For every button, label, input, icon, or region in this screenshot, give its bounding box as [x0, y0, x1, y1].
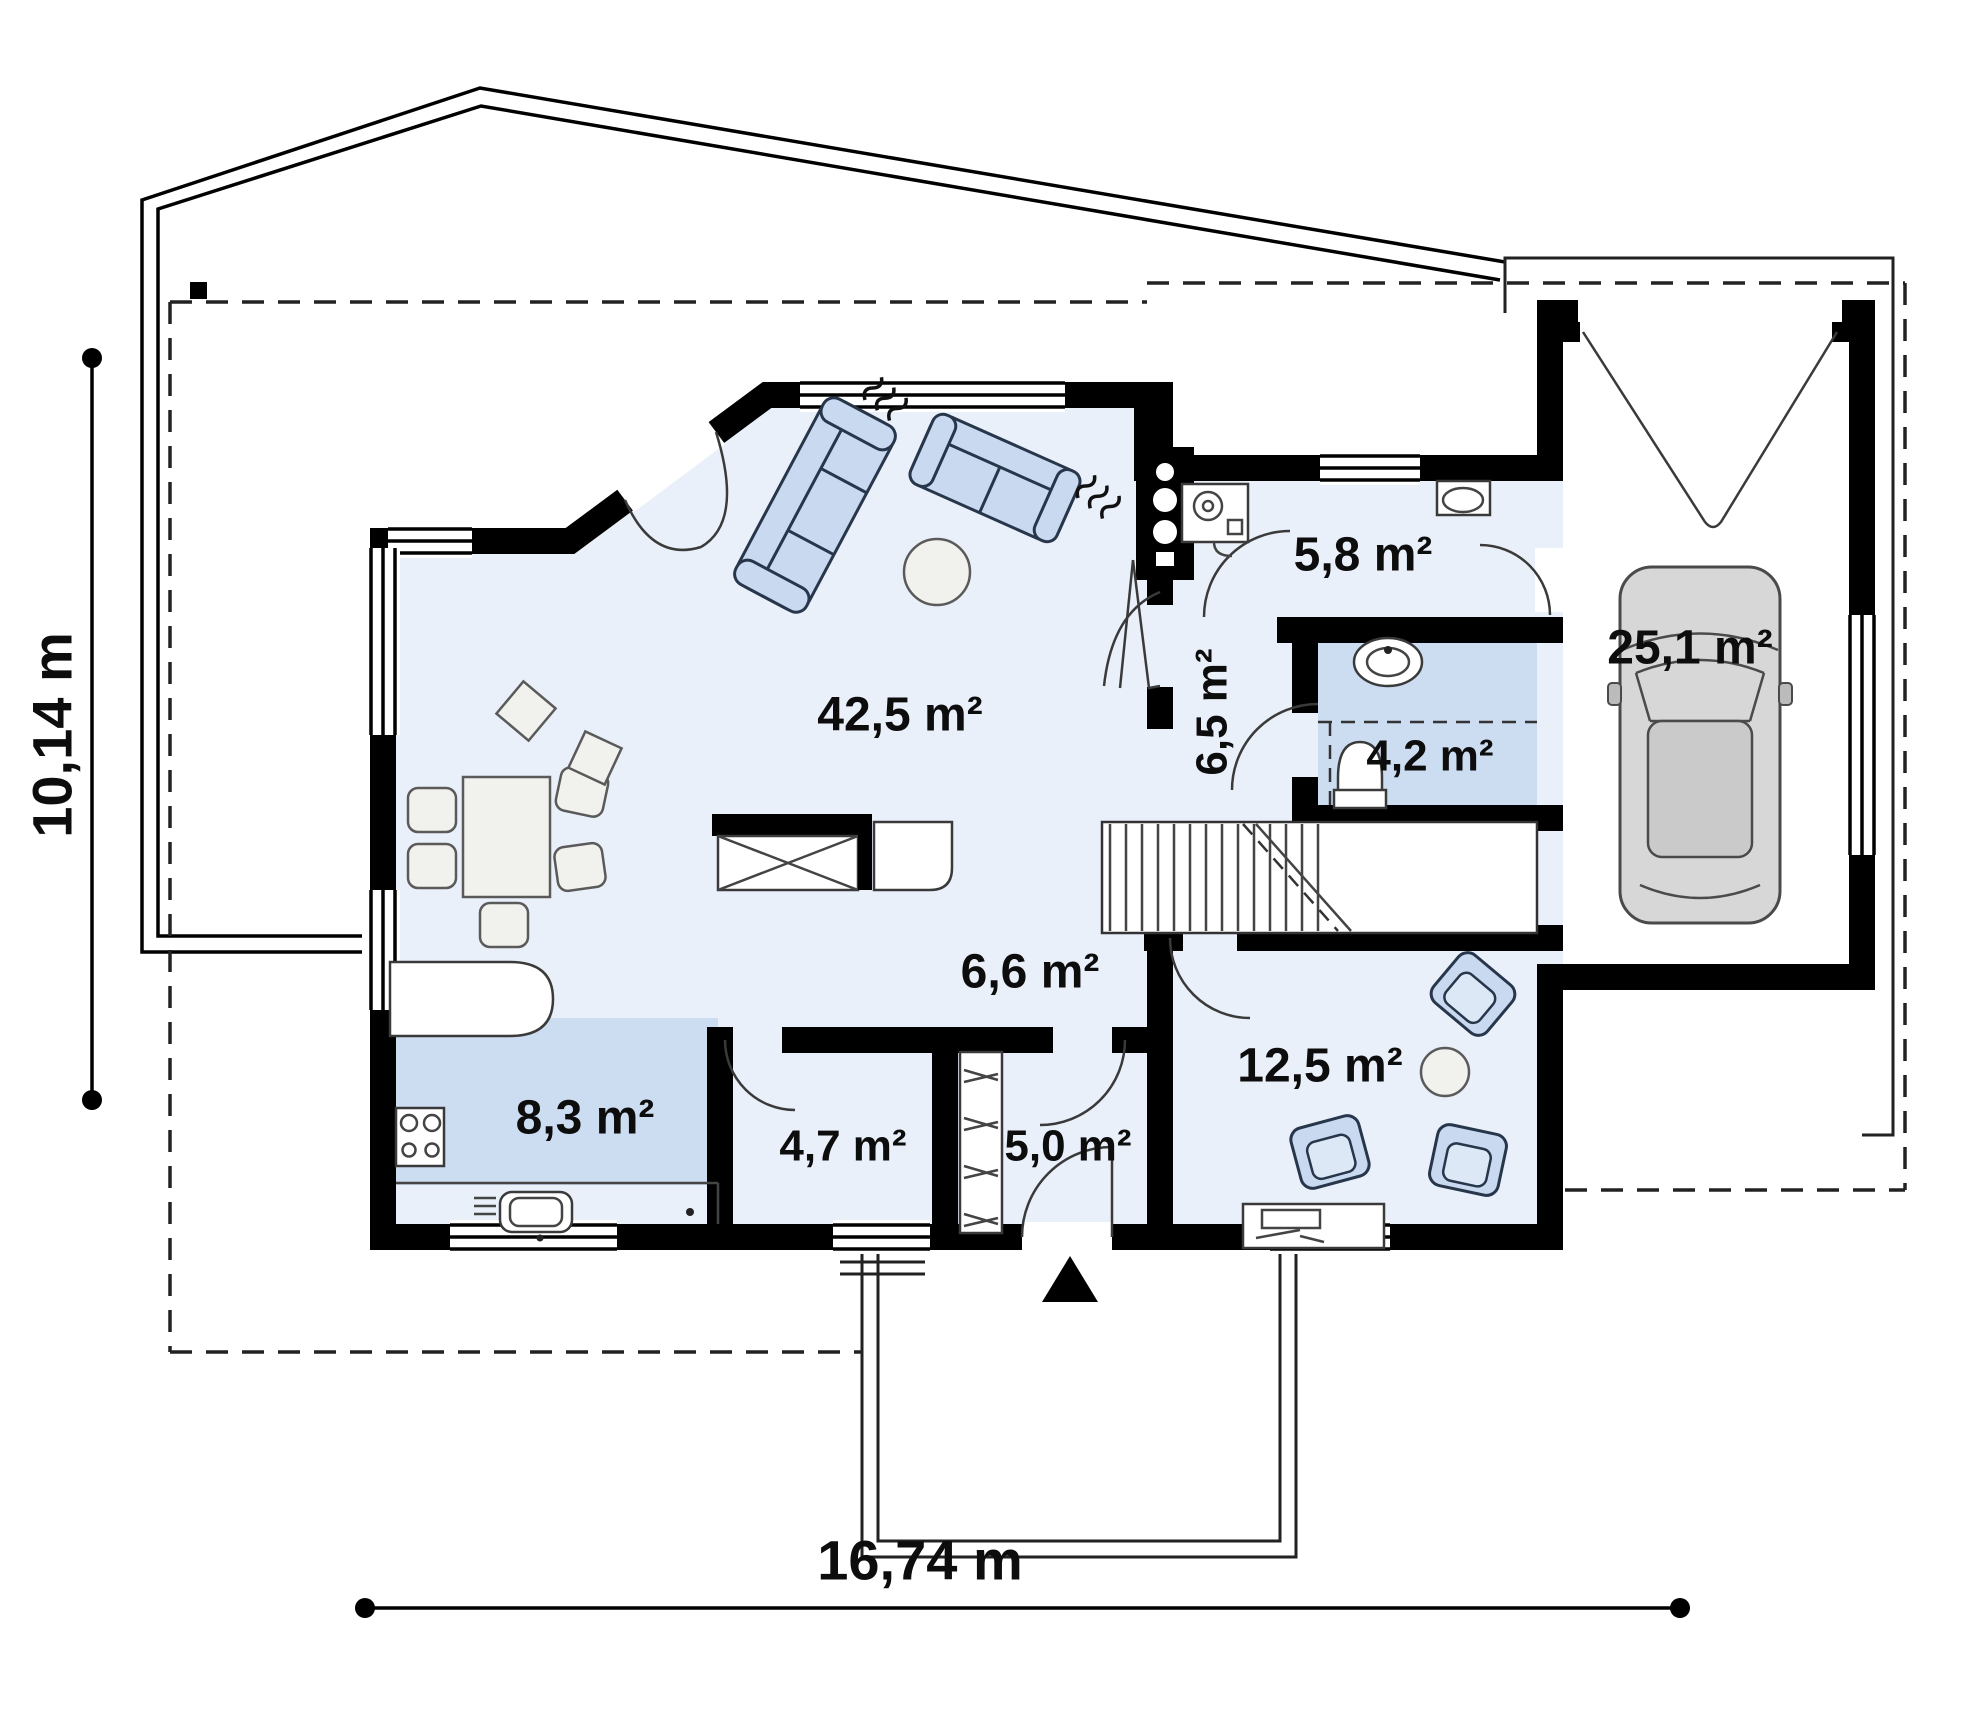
car-mirror — [1779, 683, 1792, 705]
dimension-vertical: 10,14 m — [21, 348, 103, 1110]
car-icon — [1608, 567, 1792, 923]
room-label-utility: 5,8 m² — [1294, 529, 1433, 582]
dining-chair-icon — [408, 788, 456, 832]
floor-plan-page: 42,5 m² 5,8 m² 6,5 m² 4,2 m² 25,1 m² 6,6… — [0, 0, 1980, 1732]
floor-plan-drawing: 42,5 m² 5,8 m² 6,5 m² 4,2 m² 25,1 m² 6,6… — [0, 0, 1980, 1732]
armchair-icon — [1427, 1122, 1508, 1197]
stove-icon — [396, 1108, 444, 1166]
desk-icon — [1243, 1204, 1384, 1248]
dining-chair-icon — [553, 842, 607, 892]
porch-steps — [840, 1262, 925, 1274]
dining-chair-icon — [408, 844, 456, 888]
counter-knob — [686, 1208, 694, 1216]
room-label-hall: 6,6 m² — [961, 946, 1100, 999]
gate-post — [1832, 322, 1852, 342]
room-label-pantry: 4,7 m² — [779, 1122, 906, 1171]
car-mirror — [1608, 683, 1621, 705]
dining-chair-icon — [480, 903, 528, 947]
gate-post — [1560, 322, 1580, 342]
entry-arrow-icon — [1042, 1256, 1098, 1302]
bench-icon — [874, 822, 952, 890]
dimension-label-height: 10,14 m — [21, 632, 84, 838]
stairs — [1102, 822, 1537, 933]
wardrobe-icon — [960, 1052, 1002, 1233]
pouf-icon — [1421, 1048, 1469, 1096]
utility-window — [1320, 451, 1420, 485]
room-label-garage: 25,1 m² — [1607, 622, 1772, 675]
room-label-kitchen: 8,3 m² — [516, 1092, 655, 1145]
room-label-corridor: 6,5 m² — [1188, 648, 1237, 775]
bathroom-sink-icon — [1354, 638, 1422, 686]
utility-sink-icon — [1437, 481, 1490, 515]
dimension-horizontal: 16,74 m — [355, 1529, 1690, 1619]
room-label-living: 42,5 m² — [817, 689, 982, 742]
island-cabinet — [712, 814, 952, 890]
room-label-office: 12,5 m² — [1237, 1040, 1402, 1093]
dining-table-icon — [463, 777, 550, 897]
room-label-vestibule: 5,0 m² — [1004, 1122, 1131, 1171]
corner-window-left — [366, 548, 400, 735]
terrace-post — [190, 282, 207, 299]
garage-window — [1845, 615, 1879, 855]
coffee-table-icon — [904, 539, 970, 605]
dimension-label-width: 16,74 m — [817, 1529, 1023, 1592]
pantry-window — [833, 1220, 930, 1254]
corner-window-top — [388, 524, 472, 558]
room-label-bathroom: 4,2 m² — [1366, 732, 1493, 781]
peninsula-counter — [390, 962, 553, 1036]
